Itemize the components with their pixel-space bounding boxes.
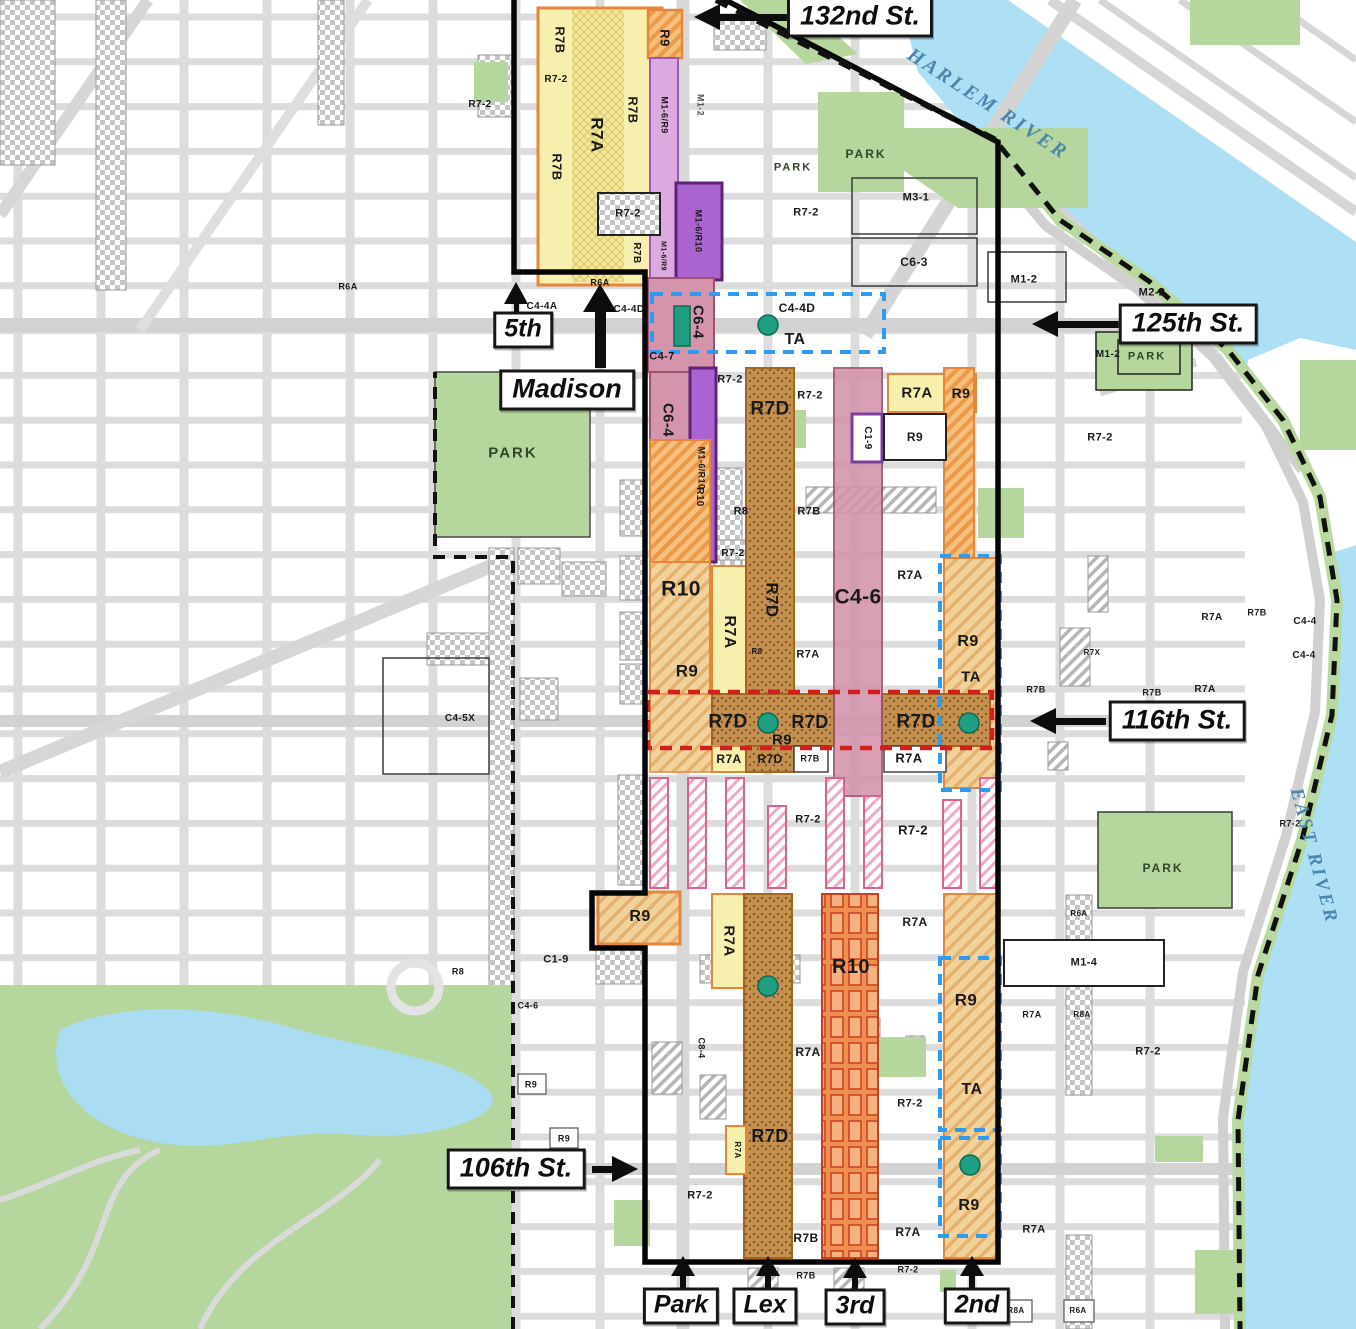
zone-label: M1-2 <box>696 94 705 116</box>
zone-label: R10 <box>832 957 870 977</box>
zone-label: R7A <box>897 569 922 581</box>
river-label: EAST RIVER <box>1287 786 1342 926</box>
street-sign-132nd-st: 132nd St. <box>787 0 933 38</box>
zone-label: R7D <box>751 1127 788 1145</box>
zone-label: R7-2 <box>468 100 491 110</box>
zone-label: R7-2 <box>717 375 742 386</box>
zone-label: R7A <box>795 1046 820 1058</box>
zone-label: R9 <box>955 992 978 1009</box>
zone-label: C8-4 <box>697 1037 706 1058</box>
zone-label: R7-2 <box>687 1191 712 1202</box>
zone-label: R7D <box>750 400 789 419</box>
zone-label: R7B <box>551 153 564 180</box>
zone-label: R7-2 <box>897 1266 918 1275</box>
zone-label: R6A <box>338 283 357 292</box>
zone-label: C4-6 <box>517 1002 538 1011</box>
zone-label: R7-2 <box>897 1099 922 1110</box>
zone-label: R7A <box>901 386 932 401</box>
zone-label: R10 <box>694 487 704 507</box>
zone-label: R7A <box>1022 1011 1041 1020</box>
zone-label: R6A <box>590 279 609 288</box>
zone-label: M3-1 <box>903 193 930 204</box>
zone-label: R7B <box>796 1272 815 1281</box>
zone-label: C1-9 <box>543 955 568 966</box>
zone-label: R9 <box>957 634 978 650</box>
zone-label: TA <box>961 670 981 685</box>
zone-label: R9 <box>558 1135 570 1144</box>
zone-label: R8A <box>1073 1011 1090 1019</box>
zone-label: C4-4A <box>527 302 558 312</box>
zone-label: R9 <box>659 29 672 46</box>
zone-label: R10 <box>661 579 701 600</box>
park-label: PARK <box>845 148 886 160</box>
zone-label: R9 <box>907 431 923 443</box>
zone-label: R7-2 <box>615 209 640 220</box>
zone-label: C4-7 <box>649 352 674 363</box>
street-sign-madison-ave: Madison <box>499 370 635 411</box>
zone-label: M1-6/R10 <box>694 210 703 253</box>
street-sign-125th-st: 125th St. <box>1119 304 1258 345</box>
zone-label: R7B <box>627 96 640 123</box>
zone-label: R8 <box>452 968 464 977</box>
zone-label: M1-6/R9 <box>660 241 667 271</box>
zone-label: R7-2 <box>793 208 818 219</box>
zone-label: C4-4D <box>779 302 816 314</box>
zone-label: R9 <box>952 386 971 400</box>
zoning-map: R7BR7-2R7-2R7BR7AR7BR9M1-6/R9M1-2R7-2M1-… <box>0 0 1356 1329</box>
zone-label: M1-4 <box>1071 958 1098 969</box>
zone-label: R7-2 <box>797 391 822 402</box>
zone-label: R7D <box>757 753 782 765</box>
zone-label: R9 <box>629 909 650 925</box>
park-label: PARK <box>488 446 537 461</box>
zone-label: R9 <box>676 663 699 680</box>
zone-label: R6A <box>1069 1307 1086 1315</box>
zone-label: R9 <box>772 733 792 748</box>
zone-label: R9 <box>958 1198 979 1214</box>
zone-label: R7B <box>800 755 819 764</box>
zone-label: R7A <box>733 1141 741 1158</box>
zone-label: R7-2 <box>1135 1047 1160 1058</box>
park-label: PARK <box>1128 352 1166 363</box>
zone-label: R7A <box>721 615 737 648</box>
street-sign-116th-st: 116th St. <box>1109 701 1246 742</box>
zone-label: R8 <box>734 507 749 518</box>
park-label: PARK <box>774 163 812 174</box>
zone-label: R7-2 <box>544 75 567 85</box>
label-layer: R7BR7-2R7-2R7BR7AR7BR9M1-6/R9M1-2R7-2M1-… <box>0 0 1356 1329</box>
zone-label: C4-5X <box>445 714 475 724</box>
zone-label: M1-2 <box>1011 275 1038 286</box>
zone-label: R8 <box>751 648 762 656</box>
zone-label: M2-2 <box>1139 288 1166 299</box>
zone-label: R7B <box>797 507 820 518</box>
zone-label: R7B <box>793 1232 818 1244</box>
zone-label: R7D <box>896 713 935 732</box>
zone-label: R7A <box>722 925 737 956</box>
street-sign-lex-ave: Lex <box>732 1288 797 1325</box>
zone-label: R7-2 <box>898 824 928 837</box>
zone-label: C4-4 <box>1293 617 1316 627</box>
zone-label: R7A <box>1201 613 1222 623</box>
zone-label: R7-2 <box>795 815 820 826</box>
street-sign-2nd-ave: 2nd <box>944 1288 1010 1325</box>
street-sign-106th-st: 106th St. <box>447 1149 586 1190</box>
zone-label: C6-4 <box>691 305 706 339</box>
zone-label: R7B <box>1026 686 1045 695</box>
zone-label: C6-3 <box>900 256 928 268</box>
zone-label: R7D <box>791 713 828 731</box>
zone-label: M1-6/R9 <box>660 96 669 133</box>
zone-label: R7B <box>631 242 641 263</box>
zone-label: R7A <box>1022 1225 1045 1236</box>
zone-label: R9 <box>525 1081 537 1090</box>
zone-label: R7A <box>902 916 927 928</box>
zone-label: R7A <box>589 117 606 152</box>
zone-label: R7D <box>708 713 747 732</box>
park-label: PARK <box>1142 862 1183 874</box>
zone-label: R7D <box>764 582 781 617</box>
zone-label: TA <box>785 332 806 348</box>
zone-label: C4-4 <box>1292 651 1315 661</box>
zone-label: M1-2 <box>1096 350 1120 360</box>
zone-label: R7A <box>716 753 741 765</box>
street-sign-5th-ave: 5th <box>493 312 553 349</box>
zone-label: R7B <box>1247 609 1266 618</box>
zone-label: C6-4 <box>661 403 676 437</box>
zone-label: C1-9 <box>862 426 872 449</box>
zone-label: C4-6 <box>834 587 881 608</box>
zone-label: R7B <box>1142 689 1161 698</box>
zone-label: R7-2 <box>721 549 744 559</box>
zone-label: R7-2 <box>1087 433 1112 444</box>
zone-label: R6A <box>1070 910 1087 918</box>
zone-label: C4-4D <box>614 305 645 315</box>
zone-label: R7A <box>1194 685 1215 695</box>
zone-label: R7B <box>554 26 567 53</box>
street-sign-park-ave: Park <box>643 1288 719 1325</box>
zone-label: TA <box>962 1082 983 1098</box>
zone-label: R7A <box>796 650 819 661</box>
street-sign-3rd-ave: 3rd <box>825 1289 886 1326</box>
zone-label: R7X <box>1084 649 1101 657</box>
zone-label: M1-6/R10 <box>697 447 706 490</box>
zone-label: R7A <box>895 1226 920 1238</box>
river-label: HARLEM RIVER <box>904 44 1072 163</box>
zone-label: R7A <box>895 752 922 765</box>
